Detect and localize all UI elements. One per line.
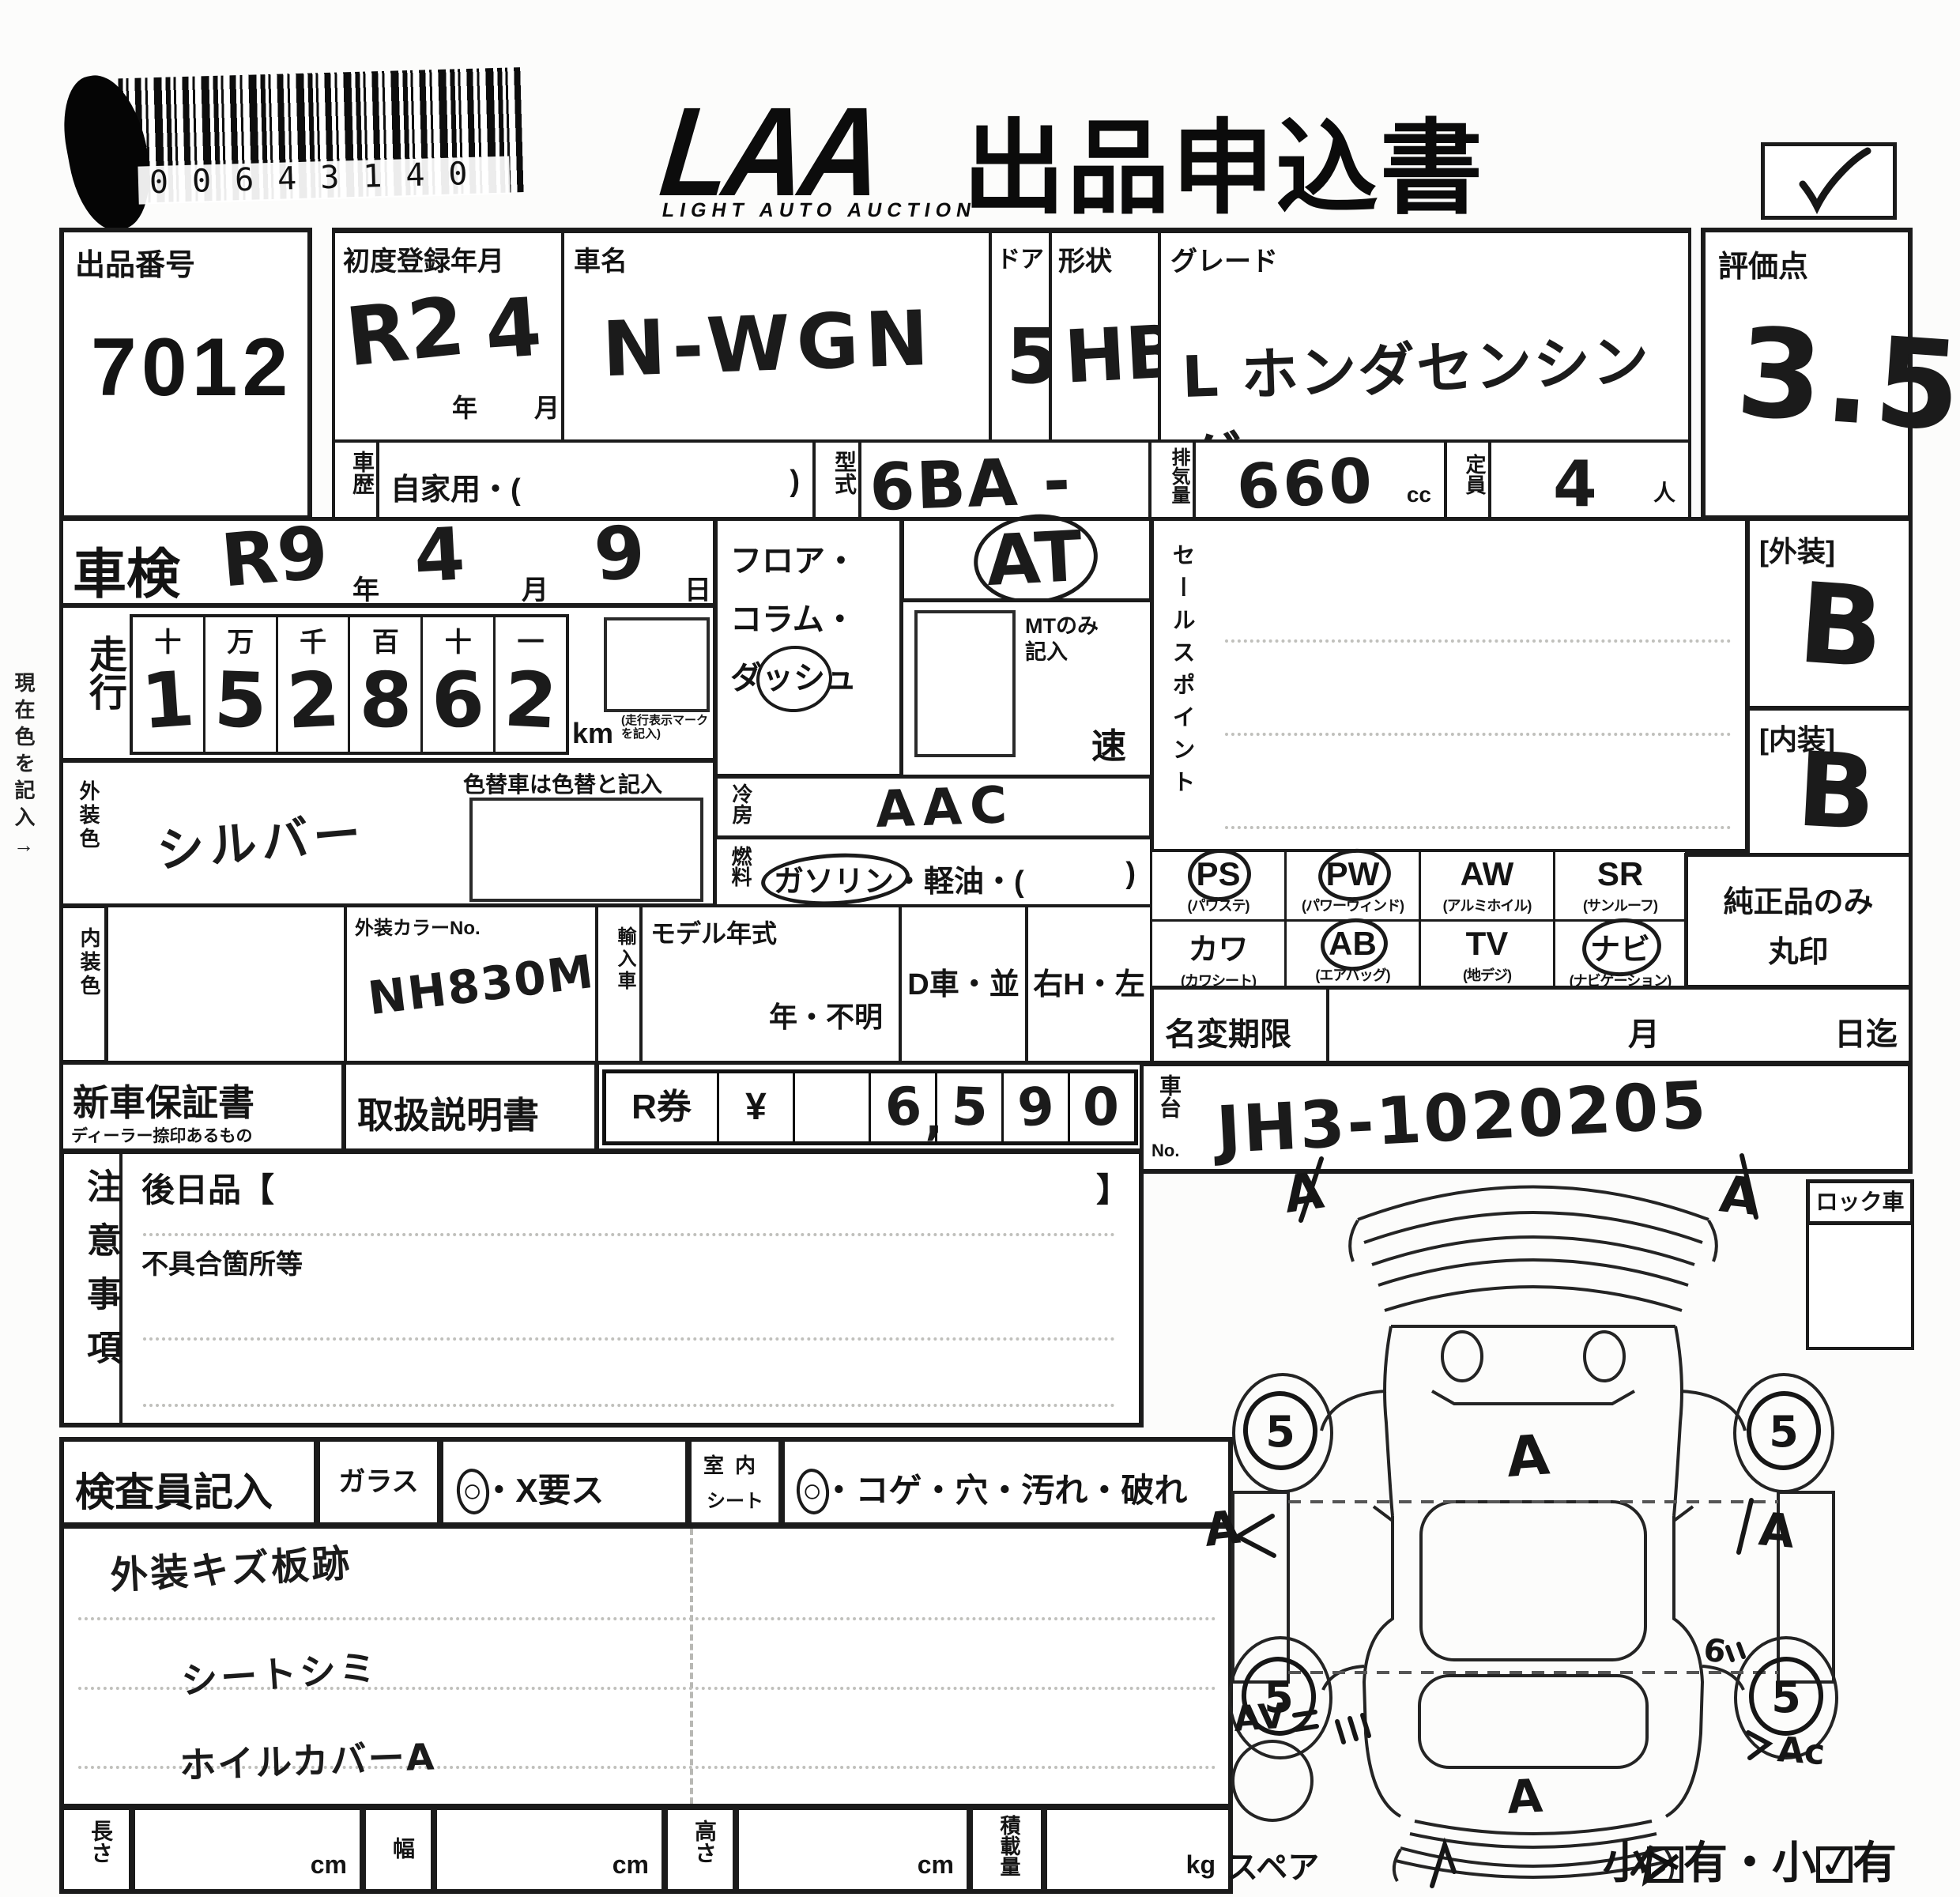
first-reg-era: R2 <box>341 280 469 386</box>
cautions-box: 注意事項 後日品【 】 不具合箇所等 <box>59 1149 1144 1427</box>
inspector-title: 検査員記入 <box>75 1461 273 1518</box>
d-car: D車・並 <box>907 968 1019 1001</box>
cap-label: 定員 <box>1461 454 1490 495</box>
equip-sr-code: SR <box>1597 855 1643 893</box>
mileage-digit: 8 <box>358 658 413 744</box>
manual-label: 取扱説明書 <box>357 1087 539 1139</box>
wheel-5-fl: 5 <box>1265 1407 1295 1457</box>
equip-tv: TV(地デジ) <box>1419 919 1555 989</box>
ext-color-row: 外装色 シルバー 色替車は色替と記入 <box>59 759 717 907</box>
ann-side-right: A <box>1757 1502 1797 1559</box>
cautions-label: 注意事項 <box>75 1168 126 1383</box>
mileage-note-1: (走行表示マーク <box>621 714 708 727</box>
ann-rear-left: AV <box>1232 1696 1287 1740</box>
small-damage-line: 小有・小有 <box>1603 1827 1897 1891</box>
digit-header: 万 <box>205 620 276 659</box>
ann-tail-side-right <box>1739 1500 1751 1552</box>
car-name-label: 車名 <box>574 239 628 278</box>
glass-options: ○・X要ス <box>462 1464 604 1512</box>
mileage-col: 一 2 <box>496 617 566 752</box>
seat-label-cell: 室内 シート <box>687 1437 783 1527</box>
windshield-arc-2 <box>1385 1287 1682 1311</box>
int-color-label: 内装色 <box>75 927 104 998</box>
inspector-note-3: ホイルカバーA <box>179 1728 436 1789</box>
cautions-dotted-1 <box>143 1233 1115 1236</box>
mileage-label: 走行 <box>76 635 131 711</box>
cap-unit: 人 <box>1653 476 1675 507</box>
disp-label: 排気量 <box>1165 447 1193 504</box>
sales-dotted-1 <box>1225 639 1731 643</box>
equip-ps-sub: (パワステ) <box>1152 895 1284 915</box>
length-unit: cm <box>311 1850 347 1880</box>
mileage-digit: 2 <box>285 658 341 744</box>
ext-grade-value: B <box>1794 559 1887 693</box>
ticket-label: R券 <box>631 1088 692 1126</box>
equip-ab: AB(エアバッグ) <box>1284 919 1421 989</box>
accepted-checkbox <box>1761 142 1897 220</box>
front-bumper-arc-1 <box>1358 1187 1709 1220</box>
blank-digit-cell <box>793 1073 869 1141</box>
mileage-mark-box <box>604 617 710 712</box>
bumper-hook-right <box>1709 1220 1717 1262</box>
month-char: 月 <box>534 388 560 424</box>
defects-label: 不具合箇所等 <box>141 1243 303 1281</box>
floor-cell: フロア・ コラム・ ダッシュ <box>714 517 903 778</box>
equip-grid: PS(パワステ) PW(パワーウィンド) AW(アルミホイル) SR(サンルーフ… <box>1150 850 1687 989</box>
equip-ab-code: AB <box>1329 925 1377 963</box>
price-d4-cell: 0 <box>1068 1073 1132 1141</box>
price-d4: 0 <box>1083 1073 1119 1141</box>
grade-label: グレード <box>1170 239 1278 278</box>
history-close: ) <box>790 465 800 499</box>
car-name-value: N-WGN <box>601 294 937 394</box>
door-cell: ドア 5 <box>989 228 1052 443</box>
digit-header: 千 <box>278 620 349 659</box>
disp-label-cell: 排気量 <box>1148 439 1196 520</box>
disp-cell: 660 cc <box>1193 439 1447 520</box>
price-d3: 9 <box>1014 1072 1057 1143</box>
int-color-value-cell <box>105 904 347 1064</box>
first-reg-cell: 初度登録年月 R2 年 4 月 <box>332 228 564 443</box>
headlight-left <box>1442 1332 1482 1381</box>
first-reg-month: 4 <box>482 281 545 379</box>
model-label: 型式 <box>828 451 860 495</box>
ticket-label-cell: R券 <box>606 1073 717 1141</box>
ann-side-left: A <box>1201 1500 1242 1557</box>
mt-entry-box <box>914 610 1016 757</box>
length-label: 長さ <box>85 1820 116 1864</box>
disp-unit: cc <box>1407 482 1431 507</box>
mileage-col: 万 5 <box>205 617 278 752</box>
equip-ps-code: PS <box>1196 855 1240 893</box>
ac-value: AAC <box>875 776 1016 839</box>
history-cell: 自家用・( ) <box>376 439 816 520</box>
digit-header: 十 <box>423 620 493 659</box>
mileage-digit: 6 <box>431 658 486 744</box>
shaken-month-char: 月 <box>522 568 548 607</box>
equip-sr-sub: (サンルーフ) <box>1555 895 1685 915</box>
ac-label: 冷房 <box>727 783 756 824</box>
mileage-unit: km <box>572 717 613 750</box>
later-items-close: 】 <box>1096 1163 1129 1212</box>
body-side-right-lower <box>1666 1516 1702 1816</box>
seat-label-2: シート <box>692 1485 778 1513</box>
laa-logo-sub: LIGHT AUTO AUCTION <box>660 199 978 222</box>
wheel-5-rr: 5 <box>1771 1673 1801 1722</box>
price-d1: 6 <box>883 1073 924 1143</box>
fuel-label: 燃料 <box>726 846 756 887</box>
mirror-left <box>1374 1507 1393 1521</box>
later-items-label: 後日品【 <box>141 1163 274 1212</box>
small-box-2-checked <box>1816 1846 1853 1883</box>
mileage-grid: 十 1 万 5 千 2 百 8 十 6 一 2 <box>130 614 569 755</box>
import-cell: 輸入車 <box>595 904 643 1064</box>
glass-label-cell: ガラス <box>315 1437 442 1527</box>
mt-note1: MTのみ <box>1025 614 1099 638</box>
form-title: 出品申込書 <box>963 85 1484 234</box>
fuel-close: ) <box>1125 857 1136 891</box>
digit-header: 一 <box>496 620 566 659</box>
int-grade-box: [内装] B <box>1746 707 1913 857</box>
small-box-1-marked <box>1647 1846 1683 1883</box>
model-cell: 6BA - JH3 <box>858 439 1151 520</box>
equip-sr: SR(サンルーフ) <box>1553 850 1687 922</box>
ac-row: 冷房 AAC <box>714 775 1153 839</box>
cautions-dotted-3 <box>143 1404 1115 1407</box>
equip-kawa-code: カワ <box>1188 925 1248 968</box>
wheel-5-fr: 5 <box>1769 1407 1799 1457</box>
mileage-col: 千 2 <box>278 617 351 752</box>
yen-cell: ¥ <box>717 1073 793 1141</box>
lot-box: 出品番号 7012 <box>59 228 312 520</box>
ticket-cell: R券 ¥ 6, 5 9 0 <box>595 1061 1144 1152</box>
namechange-label: 名変期限 <box>1165 1009 1291 1054</box>
equip-ps: PS(パワステ) <box>1150 850 1287 922</box>
inspector-note-2: シートシミ <box>179 1639 380 1704</box>
equip-ab-sub: (エアバッグ) <box>1287 964 1419 985</box>
cautions-dotted-2 <box>143 1337 1115 1341</box>
shaken-row: 車検 R9 年 4 月 9 日 <box>59 517 717 607</box>
equip-aw-sub: (アルミホイル) <box>1421 895 1553 915</box>
history-label: 車歴 <box>346 451 378 495</box>
shaken-day-char: 日 <box>684 568 711 607</box>
score-label: 評価点 <box>1718 242 1808 285</box>
width-unit: cm <box>612 1850 649 1880</box>
equip-aw-code: AW <box>1461 855 1514 893</box>
history-value: 自家用・( <box>390 465 521 508</box>
barcode: 00643140 <box>70 61 526 243</box>
mileage-digit: 2 <box>502 658 559 744</box>
height-label-cell: 高さ <box>663 1805 737 1894</box>
mileage-box: 走行 十 1 万 5 千 2 百 8 十 6 一 2 km (走 <box>59 604 717 762</box>
ann-ticks-six <box>1728 1644 1743 1660</box>
model-year-label: モデル年式 <box>650 914 777 950</box>
floor-line3a: ダ <box>730 661 762 696</box>
namechange-label-cell: 名変期限 <box>1154 990 1329 1061</box>
import-label: 輸入車 <box>611 926 639 993</box>
fuel-gasoline: ガソリン <box>774 857 894 900</box>
equip-pw-code: PW <box>1326 855 1380 893</box>
length-value-cell: cm <box>130 1805 364 1894</box>
equip-tv-code: TV <box>1466 925 1509 963</box>
length-label-cell: 長さ <box>59 1805 134 1894</box>
sales-dotted-2 <box>1225 733 1731 736</box>
ann-rear-right: Ac <box>1776 1729 1826 1773</box>
equip-navi: ナビ(ナビゲーション) <box>1553 919 1687 989</box>
warranty-label: 新車保証書 <box>73 1074 254 1126</box>
equip-kawa: カワ(カワシート) <box>1150 919 1287 989</box>
cautions-label-col: 注意事項 <box>64 1154 122 1423</box>
sales-box: セールスポイント <box>1150 517 1749 853</box>
model-label-cell: 型式 <box>812 439 861 520</box>
equip-aw: AW(アルミホイル) <box>1419 850 1555 922</box>
sales-dotted-3 <box>1225 826 1731 829</box>
cowl-line <box>1432 1391 1634 1404</box>
shaken-year-char: 年 <box>352 568 379 607</box>
color-no-value: NH830M <box>365 945 597 1026</box>
sales-label: セールスポイント <box>1165 543 1198 802</box>
check-mark-icon <box>1765 146 1894 217</box>
small-mid: 有・小 <box>1683 1838 1816 1888</box>
floor-line1: フロア・ <box>730 544 857 579</box>
glass-ok-mark: ○ <box>462 1472 482 1510</box>
ann-zigzag-rear-left <box>1432 1845 1454 1886</box>
handle-cell: 右H・左H <box>1025 904 1153 1064</box>
namechange-month: 月 <box>1628 1009 1660 1054</box>
price-d2: 5 <box>950 1073 989 1142</box>
shaken-era: R9 <box>218 510 332 603</box>
height-value-cell: cm <box>734 1805 971 1894</box>
warranty-cell: 新車保証書 ディーラー捺印あるもの <box>59 1061 345 1152</box>
int-color-label-cell: 内装色 <box>59 904 108 1064</box>
inspector-dotted-1 <box>78 1617 1216 1620</box>
int-grade-value: B <box>1794 730 1879 854</box>
body-side-left-lower <box>1364 1516 1400 1816</box>
mt-cell: MTのみ 記入 速 <box>900 599 1153 778</box>
warranty-sub: ディーラー捺印あるもの <box>71 1123 253 1147</box>
equip-pw: PW(パワーウィンド) <box>1284 850 1421 922</box>
lot-label: 出品番号 <box>75 240 195 284</box>
car-name-cell: 車名 N-WGN <box>561 228 992 443</box>
equip-tv-sub: (地デジ) <box>1421 964 1553 985</box>
auction-sheet: 00643140 LAA LIGHT AUTO AUCTION 出品申込書 現在… <box>0 0 1960 1897</box>
inspector-note-1: 外装キズ板跡 <box>108 1532 352 1600</box>
chassis-label: 車台 <box>1153 1074 1185 1118</box>
at-cell: AT <box>900 517 1153 602</box>
ext-grade-box: [外装] B <box>1746 517 1913 710</box>
ticket-inner: R券 ¥ 6, 5 9 0 <box>602 1069 1138 1145</box>
score-value: 3.5 <box>1732 300 1960 459</box>
manual-cell: 取扱説明書 <box>342 1061 598 1152</box>
first-reg-label: 初度登録年月 <box>343 239 504 278</box>
ann-front-right: A <box>1717 1165 1762 1228</box>
floor-label: フロア・ コラム・ ダッシュ <box>730 532 857 707</box>
at-value: AT <box>984 515 1084 602</box>
floor-line3c: ュ <box>825 661 857 696</box>
equip-pw-sub: (パワーウィンド) <box>1287 895 1419 915</box>
history-label-cell: 車歴 <box>332 439 379 520</box>
car-diagram: A A A 5 5 5 5 A A AV Ac A 6 スペア <box>1154 1145 1913 1895</box>
namechange-row: 名変期限 月 日迄 <box>1150 986 1913 1065</box>
cap-cell: 4 人 <box>1488 439 1691 520</box>
shape-label: 形状 <box>1058 239 1112 278</box>
seat-rest: ・コゲ・穴・汚れ・破れ <box>822 1472 1187 1509</box>
lot-no: 7012 <box>91 321 292 415</box>
score-box: 評価点 3.5 <box>1701 228 1913 520</box>
width-value-cell: cm <box>432 1805 666 1894</box>
fuel-options: ガソリン・軽油・( <box>774 857 1024 900</box>
roof-window-front <box>1421 1502 1645 1660</box>
recolor-box <box>469 798 703 902</box>
headlight-right <box>1585 1332 1624 1381</box>
height-label: 高さ <box>688 1820 720 1864</box>
inspector-body: 外装キズ板跡 シートシミ ホイルカバーA <box>59 1524 1233 1808</box>
small-suffix: 有 <box>1853 1838 1897 1888</box>
mileage-col: 百 8 <box>350 617 423 752</box>
glass-rest: ・X要ス <box>482 1472 604 1509</box>
inspector-title-cell: 検査員記入 <box>59 1437 318 1527</box>
shaken-month: 4 <box>412 511 467 598</box>
grade-cell: グレード L ホンダセンシング <box>1158 228 1691 443</box>
price-d2-cell: 5 <box>935 1073 1001 1141</box>
ext-color-value: シルバー <box>154 795 368 882</box>
price-d3-cell: 9 <box>1001 1073 1068 1141</box>
mirror-right <box>1674 1507 1693 1521</box>
mileage-note: (走行表示マーク を記入) <box>621 714 716 741</box>
cap-label-cell: 定員 <box>1444 439 1491 520</box>
genuine-note1: 純正品のみ <box>1688 877 1909 921</box>
equip-navi-code: ナビ <box>1590 925 1650 968</box>
load-label-cell: 積載量 <box>968 1805 1046 1894</box>
disp-value: 660 <box>1235 445 1377 523</box>
seat-ok-mark: ○ <box>802 1472 822 1510</box>
shaken-day: 9 <box>591 510 647 598</box>
cap-value: 4 <box>1553 447 1597 521</box>
ann-hood: A <box>1504 1422 1551 1490</box>
floor-line2: コラム・ <box>730 602 856 637</box>
shaken-label: 車検 <box>73 530 180 609</box>
ann-front-left: A <box>1280 1162 1328 1225</box>
mileage-col: 十 6 <box>423 617 496 752</box>
door-label: ドア <box>997 239 1044 274</box>
width-label: 幅 <box>386 1837 418 1859</box>
floor-line3b: ッシ <box>762 649 825 707</box>
color-no-cell: 外装カラーNo. NH830M <box>344 904 598 1064</box>
inspector-divider <box>690 1529 693 1804</box>
roof-window-rear <box>1419 1676 1647 1767</box>
ann-six: 6 <box>1702 1631 1728 1670</box>
price-d1-cell: 6, <box>869 1073 935 1141</box>
body-side-left-upper <box>1385 1326 1393 1516</box>
digit-header: 十 <box>133 620 203 659</box>
yen-sign: ¥ <box>745 1086 767 1128</box>
speed-char: 速 <box>1091 718 1126 768</box>
mileage-digit: 5 <box>213 658 268 744</box>
small-prefix: 小 <box>1603 1838 1647 1888</box>
fuel-row: 燃料 ガソリン・軽油・( ) <box>714 836 1153 907</box>
genuine-box: 純正品のみ 丸印 <box>1684 853 1913 989</box>
mileage-col: 十 1 <box>133 617 205 752</box>
glass-options-cell: ○・X要ス <box>439 1437 690 1527</box>
seat-label-1: 室内 <box>692 1450 778 1479</box>
mileage-digit: 1 <box>138 658 197 745</box>
ann-arrow-side-left <box>1238 1516 1274 1556</box>
bumper-hook-left <box>1350 1220 1358 1262</box>
seat-options: ○・コゲ・穴・汚れ・破れ <box>802 1464 1187 1512</box>
model-year-cell: モデル年式 年・不明 <box>639 904 902 1064</box>
d-car-cell: D車・並 <box>899 904 1028 1064</box>
shape-cell: 形状 HB <box>1049 228 1161 443</box>
spare-label: スペア <box>1227 1850 1319 1885</box>
margin-note: 現在色を記入→ <box>9 672 39 863</box>
rear-hook-left <box>1394 1850 1400 1881</box>
ann-trunk: A <box>1506 1769 1543 1824</box>
digit-header: 百 <box>350 620 420 659</box>
ext-color-label: 外装色 <box>74 780 104 851</box>
genuine-note2: 丸印 <box>1688 927 1909 971</box>
year-char: 年 <box>452 388 477 424</box>
fuel-rest: ・軽油・( <box>894 866 1024 899</box>
windshield-arc-1 <box>1378 1260 1688 1285</box>
model-year-value: 年・不明 <box>769 994 883 1035</box>
recolor-note: 色替車は色替と記入 <box>463 767 662 799</box>
width-label-cell: 幅 <box>361 1805 435 1894</box>
mt-note2: 記入 <box>1025 640 1068 664</box>
glass-label: ガラス <box>338 1467 418 1497</box>
body-side-right-upper <box>1674 1326 1682 1516</box>
mt-note: MTのみ 記入 <box>1025 613 1099 666</box>
spare-circle <box>1233 1741 1312 1820</box>
mileage-note-2: を記入) <box>621 727 661 741</box>
namechange-until: 日迄 <box>1834 1009 1898 1054</box>
height-unit: cm <box>918 1850 954 1880</box>
load-label: 積載量 <box>995 1815 1024 1876</box>
color-no-label: 外装カラーNo. <box>355 912 481 940</box>
